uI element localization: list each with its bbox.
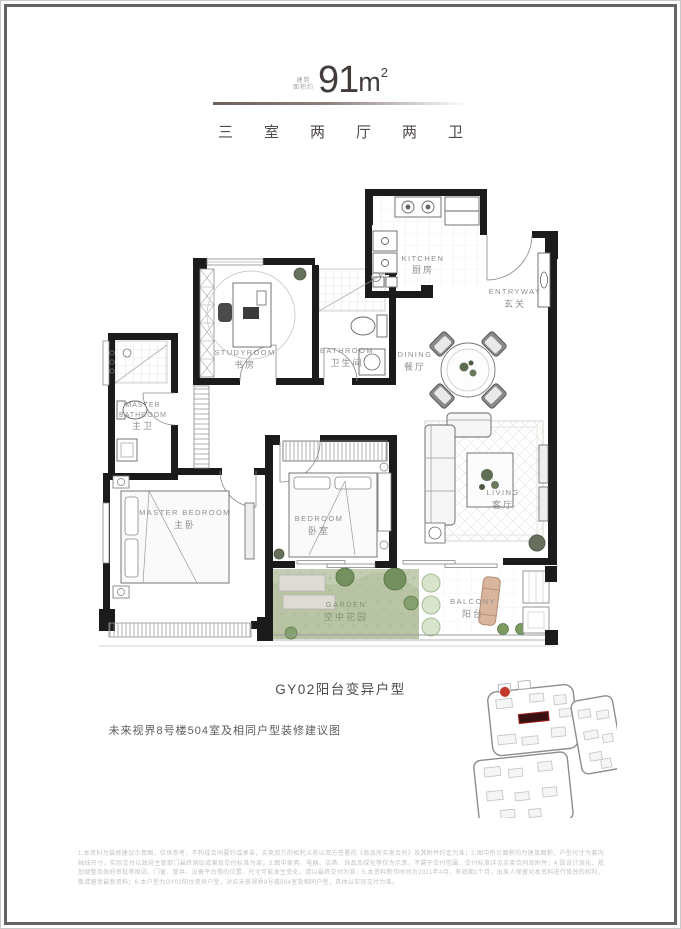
study-label-en: STUDYROOM xyxy=(214,348,275,357)
bathroom-label-zh: 卫生间 xyxy=(330,357,363,368)
bathroom-label-en: BATHROOM xyxy=(320,346,374,355)
balcony-label-en: BALCONY xyxy=(450,597,496,606)
dining-set xyxy=(429,331,508,410)
area-unit-exponent: 2 xyxy=(381,65,388,80)
shrub-icon xyxy=(404,596,418,610)
balcony-label-zh: 阳台 xyxy=(462,608,484,619)
garden-label-en: GARDEN xyxy=(326,600,367,609)
area-label-line1: 建筑 xyxy=(293,78,314,85)
chair-icon xyxy=(218,303,232,322)
keyplan-building-right xyxy=(570,695,617,775)
dining-label-zh: 餐厅 xyxy=(404,361,426,372)
shower-floor xyxy=(319,269,385,311)
entry-door xyxy=(487,235,532,280)
living-label-en: LIVING xyxy=(487,488,520,497)
entryway-label-zh: 玄关 xyxy=(504,298,526,309)
vanity-icon xyxy=(117,439,137,461)
area-unit: m2 xyxy=(358,56,388,99)
entry-cabinet-icon xyxy=(538,253,550,307)
tv-console-icon xyxy=(539,487,548,521)
plant-pot-icon xyxy=(422,574,440,592)
side-table-icon xyxy=(425,523,445,543)
key-plan xyxy=(462,668,617,818)
dresser-icon xyxy=(378,473,391,531)
floor-plan-svg: KITCHEN 厨房 ENTRYWAY 玄关 STUDYROOM 书房 BATH… xyxy=(93,173,571,655)
study-furniture xyxy=(207,268,306,359)
shrub-icon xyxy=(384,568,406,590)
bay-window xyxy=(109,623,251,637)
garden-planter xyxy=(279,575,325,591)
nightstand-icon xyxy=(113,586,129,598)
keyplan-building-top xyxy=(486,676,579,757)
pillow-icon xyxy=(294,477,330,489)
area-value: 91 xyxy=(318,61,358,99)
garden-label-zh: 空中花园 xyxy=(324,611,368,622)
plant-pot-icon xyxy=(422,596,440,614)
shrub-icon xyxy=(285,627,297,639)
study-label-zh: 书房 xyxy=(234,359,256,370)
living-label-zh: 客厅 xyxy=(492,499,514,510)
sofa-icon xyxy=(425,425,455,525)
bookshelf-icon xyxy=(200,269,214,377)
dining-label-en: DINING xyxy=(398,350,433,359)
master-bath-label-en1: MASTER xyxy=(125,402,160,409)
nightstand-icon xyxy=(113,476,129,488)
plant-icon xyxy=(294,268,306,280)
sink-icon xyxy=(373,231,397,251)
layout-summary: 三室两厅两卫 xyxy=(0,121,681,142)
plant-icon xyxy=(529,535,545,551)
keyplan-building-bottom xyxy=(473,751,574,818)
kitchen-label-zh: 厨房 xyxy=(412,264,434,275)
area-title: 建筑 面积约 91 m2 xyxy=(0,56,681,99)
area-label-tiny: 建筑 面积约 xyxy=(293,78,314,92)
layout-summary-text: 三室两厅两卫 xyxy=(218,124,494,141)
area-label-line2: 面积约 xyxy=(293,85,314,92)
ac-unit-icon xyxy=(523,607,549,633)
legal-disclaimer: 1.本资料为装修建议示意图，仅供参考，不构成合同要约或承诺，买卖双方的权利义务以… xyxy=(78,850,604,888)
bedroom-label-zh: 卧室 xyxy=(308,525,330,536)
master-bath-label-en2: BATHROOM xyxy=(119,412,167,419)
entryway-label-en: ENTRYWAY xyxy=(489,287,542,296)
master-bedroom-label-zh: 主卧 xyxy=(174,519,196,530)
plant-icon xyxy=(274,549,284,559)
sink-icon xyxy=(373,253,397,273)
bedroom-label-en: BEDROOM xyxy=(295,514,344,523)
hallway-cabinet-icon xyxy=(194,386,209,468)
pillow-icon xyxy=(335,477,371,489)
key-plan-svg xyxy=(462,668,617,818)
dining-table-icon xyxy=(441,343,495,397)
master-bedroom-furniture xyxy=(113,476,254,598)
shrub-icon xyxy=(336,568,354,586)
plant-pot-icon xyxy=(498,624,509,635)
dresser-icon xyxy=(245,503,254,559)
master-bedroom-label-en: MASTER BEDROOM xyxy=(139,508,231,517)
laptop-icon xyxy=(243,307,259,319)
plant-pot-icon xyxy=(422,618,440,636)
wardrobe-icon xyxy=(283,441,387,461)
bedroom-furniture xyxy=(274,463,391,559)
master-shower-floor xyxy=(115,341,167,383)
pillow-icon xyxy=(125,539,138,577)
project-note-caption: 未来视界8号楼504室及相同户型装修建议图 xyxy=(0,722,449,738)
master-bath-label-zh: 主卫 xyxy=(132,420,154,431)
pillow-icon xyxy=(125,497,138,535)
toilet-icon xyxy=(351,317,375,335)
kitchen-label-en: KITCHEN xyxy=(402,254,445,263)
title-divider xyxy=(213,102,469,105)
tv-console-icon xyxy=(539,445,548,483)
floor-plan: KITCHEN 厨房 ENTRYWAY 玄关 STUDYROOM 书房 BATH… xyxy=(93,173,571,655)
